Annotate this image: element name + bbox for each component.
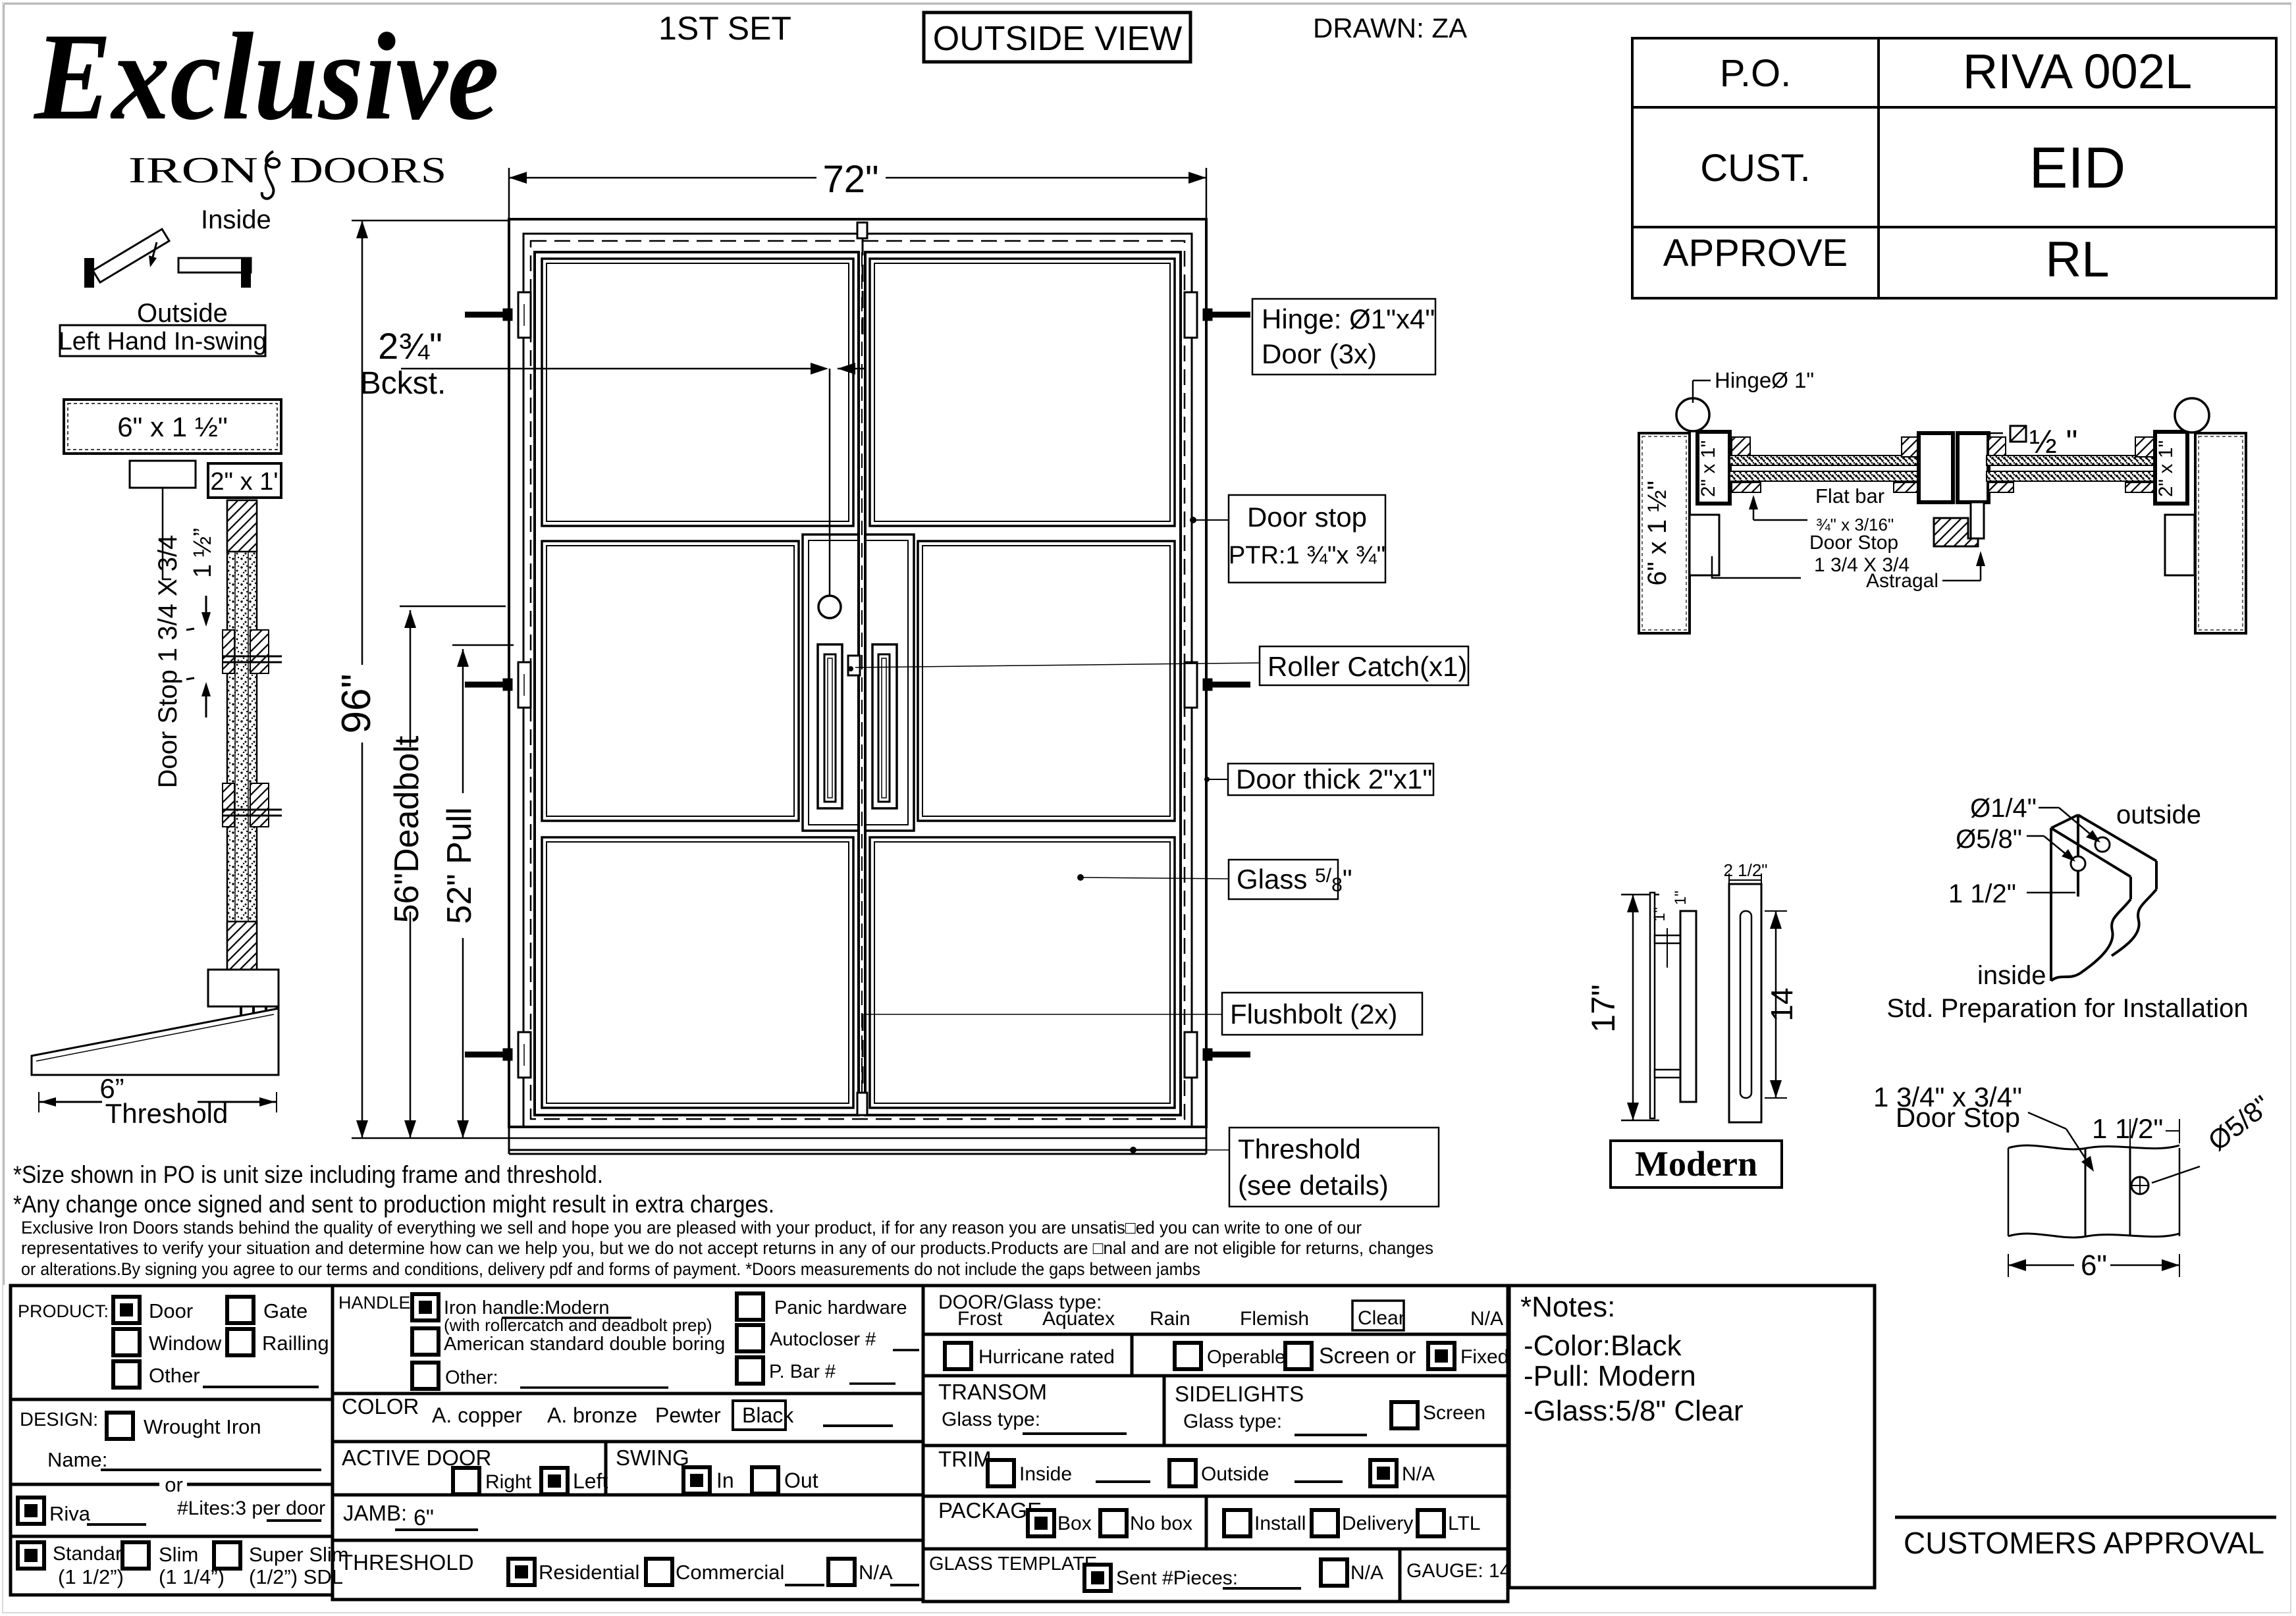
svg-text:Ø1/4": Ø1/4" [1970,794,2037,823]
svg-text:2¾": 2¾" [378,325,442,367]
svg-text:Super Slim: Super Slim [249,1543,349,1566]
svg-text:2" x 1': 2" x 1' [210,468,278,496]
svg-text:Glass type:: Glass type: [942,1409,1040,1430]
svg-text:Hurricane rated: Hurricane rated [978,1346,1115,1368]
svg-text:Gate: Gate [263,1299,307,1322]
svg-text:*Size shown in PO is unit size: *Size shown in PO is unit size including… [13,1161,603,1188]
svg-text:Commercial: Commercial [676,1561,784,1584]
svg-text:Door thick 2"x1": Door thick 2"x1" [1236,764,1432,795]
svg-text:Residential: Residential [539,1561,639,1584]
svg-text:Threshold: Threshold [105,1098,228,1129]
svg-text:GAUGE: 14: GAUGE: 14 [1406,1560,1510,1582]
svg-text:1 1/2": 1 1/2" [2092,1113,2163,1144]
svg-text:Std. Preparation for Installat: Std. Preparation for Installation [1886,994,2248,1023]
svg-text:or alterations.By signing you: or alterations.By signing you agree to o… [21,1259,1200,1279]
svg-text:DESIGN:: DESIGN: [20,1409,98,1430]
svg-text:Door: Door [149,1299,193,1322]
svg-text:A. copper: A. copper [432,1403,522,1427]
svg-text:No box: No box [1130,1513,1192,1534]
svg-text:Frost: Frost [957,1308,1003,1330]
svg-text:1 1/2": 1 1/2" [1948,879,2016,908]
svg-text:Aquatex: Aquatex [1042,1308,1115,1330]
svg-text:COLOR: COLOR [342,1394,419,1419]
svg-text:Pewter: Pewter [655,1403,721,1427]
svg-text:*Notes:: *Notes: [1520,1291,1615,1323]
svg-text:American standard double borin: American standard double boring [444,1334,725,1355]
svg-text:Flushbolt (2x): Flushbolt (2x) [1230,999,1397,1030]
svg-text:LTL: LTL [1448,1513,1480,1534]
svg-text:2 1/2": 2 1/2" [1723,860,1767,880]
svg-text:Wrought Iron: Wrought Iron [144,1415,261,1438]
svg-text:N/A: N/A [1402,1463,1435,1485]
svg-text:Window: Window [149,1332,222,1355]
svg-text:TRIM: TRIM [938,1447,992,1471]
svg-text:Riva: Riva [49,1502,91,1525]
svg-text:52" Pull: 52" Pull [441,807,479,924]
svg-text:PTR:1 ¾"x ¾": PTR:1 ¾"x ¾" [1229,542,1385,569]
svg-text:1 ½”: 1 ½” [189,528,217,578]
svg-text:(with rollercatch and deadbolt: (with rollercatch and deadbolt prep) [444,1315,712,1335]
svg-text:Glass type:: Glass type: [1183,1411,1282,1432]
svg-text:(1 1/2”): (1 1/2”) [58,1565,124,1588]
svg-text:THRESHOLD: THRESHOLD [340,1550,474,1575]
svg-text:Delivery: Delivery [1342,1513,1413,1534]
svg-text:72": 72" [822,158,878,201]
svg-text:14: 14 [1765,987,1799,1021]
svg-text:Left: Left [573,1469,608,1493]
svg-text:Screen: Screen [1423,1402,1485,1424]
svg-text:OUTSIDE VIEW: OUTSIDE VIEW [933,20,1182,58]
svg-text:APPROVE: APPROVE [1663,232,1848,274]
svg-text:or: or [165,1473,183,1496]
svg-text:6": 6" [414,1505,434,1530]
svg-text:56"Deadbolt: 56"Deadbolt [388,735,426,923]
svg-text:Autocloser #: Autocloser # [770,1329,876,1350]
svg-text:Outside: Outside [1201,1463,1269,1485]
svg-text:Modern: Modern [1635,1144,1757,1184]
svg-text:Outside: Outside [137,299,228,328]
svg-text:IRON: IRON [128,150,258,191]
svg-text:Box: Box [1057,1513,1092,1534]
svg-text:DRAWN: ZA: DRAWN: ZA [1313,13,1467,43]
svg-text:Left Hand In-swing: Left Hand In-swing [59,328,267,355]
svg-text:Exclusive Iron Doors stands be: Exclusive Iron Doors stands behind the q… [21,1218,1362,1238]
svg-text:Door Stop: Door Stop [1896,1102,2020,1133]
svg-text:Other: Other [149,1364,200,1387]
svg-text:1": 1" [1651,907,1669,922]
svg-text:2" x 1": 2" x 1" [2155,440,2177,497]
svg-text:Install: Install [1254,1513,1306,1534]
svg-text:A. bronze: A. bronze [547,1403,637,1427]
svg-text:TRANSOM: TRANSOM [938,1380,1047,1404]
svg-text:Black: Black [742,1403,794,1427]
svg-text:1ST SET: 1ST SET [658,10,791,47]
svg-text:Roller Catch(x1): Roller Catch(x1) [1268,651,1467,682]
svg-text:Hinge: Ø1"x4": Hinge: Ø1"x4" [1262,303,1435,334]
svg-text:Other:: Other: [445,1367,498,1388]
svg-text:96": 96" [334,674,379,734]
svg-text:*Any change once signed and se: *Any change once signed and sent to prod… [13,1191,774,1218]
svg-text:Ø5/8": Ø5/8" [1956,825,2022,854]
svg-text:-Pull: Modern: -Pull: Modern [1524,1360,1696,1392]
svg-text:In: In [716,1469,734,1492]
svg-text:1": 1" [1672,891,1690,905]
svg-text:Exclusive: Exclusive [33,8,499,146]
svg-text:HANDLE: HANDLE [338,1293,411,1313]
svg-text:RIVA 002L: RIVA 002L [1963,44,2192,99]
svg-text:SIDELIGHTS: SIDELIGHTS [1175,1382,1304,1406]
svg-text:Door Stop 1 3/4 X 3/4: Door Stop 1 3/4 X 3/4 [153,535,182,789]
svg-text:Operable: Operable [1207,1347,1285,1368]
svg-text:(see details): (see details) [1238,1170,1389,1201]
svg-text:Name:: Name: [47,1448,107,1471]
svg-text:HingeØ 1": HingeØ 1" [1715,368,1814,392]
svg-text:DOORS: DOORS [290,150,446,191]
svg-text:SWING: SWING [616,1446,689,1470]
svg-text:-Color:Black: -Color:Black [1524,1330,1682,1362]
svg-text:Fixed: Fixed [1460,1346,1508,1368]
svg-text:-Glass:5/8" Clear: -Glass:5/8" Clear [1524,1395,1744,1427]
svg-text:GLASS TEMPLATE: GLASS TEMPLATE [929,1553,1097,1575]
svg-text:Slim: Slim [159,1543,198,1566]
svg-text:Railling: Railling [262,1332,329,1355]
svg-text:P. Bar #: P. Bar # [769,1361,836,1382]
svg-text:6" x 1 ½": 6" x 1 ½" [117,411,228,442]
svg-text:6" x 1 ½": 6" x 1 ½" [1643,481,1672,586]
svg-text:17": 17" [1585,984,1622,1032]
svg-text:#Lites:3 per door: #Lites:3 per door [177,1498,325,1519]
svg-text:CUSTOMERS APPROVAL: CUSTOMERS APPROVAL [1904,1526,2264,1560]
svg-text:representatives to verify your: representatives to verify your situation… [21,1238,1433,1258]
svg-text:Inside: Inside [201,205,271,234]
svg-text:½ ": ½ " [2029,423,2077,460]
svg-text:P.O.: P.O. [1720,52,1792,95]
svg-text:Door (3x): Door (3x) [1262,338,1377,369]
svg-text:N/A: N/A [1350,1562,1383,1584]
svg-text:Rain: Rain [1150,1308,1190,1330]
svg-text:Right: Right [485,1471,532,1493]
svg-text:2" x 1": 2" x 1" [1697,440,1719,497]
svg-text:Inside: Inside [1019,1463,1072,1485]
svg-text:Threshold: Threshold [1238,1134,1361,1164]
svg-text:Out: Out [784,1469,818,1492]
svg-text:Bckst.: Bckst. [360,366,446,401]
svg-text:Flemish: Flemish [1240,1308,1309,1330]
svg-text:RL: RL [2045,232,2109,288]
svg-text:Screen or: Screen or [1319,1343,1416,1368]
svg-text:EID: EID [2029,135,2126,200]
svg-text:CUST.: CUST. [1700,147,1811,190]
svg-text:1 3/4 X 3/4: 1 3/4 X 3/4 [1814,554,1909,576]
svg-text:(1/2”) SDL: (1/2”) SDL [249,1565,343,1588]
svg-text:Door Stop: Door Stop [1809,532,1898,554]
svg-text:Panic hardware: Panic hardware [774,1297,907,1318]
svg-text:N/A: N/A [1470,1308,1503,1330]
svg-text:outside: outside [2116,800,2201,829]
svg-text:Flat bar: Flat bar [1815,484,1884,508]
svg-text:Door stop: Door stop [1247,502,1367,533]
svg-text:Clear: Clear [1358,1307,1405,1329]
svg-text:PRODUCT:: PRODUCT: [18,1301,109,1321]
svg-text:Sent #Pieces:: Sent #Pieces: [1116,1567,1238,1589]
svg-text:6": 6" [2081,1249,2107,1282]
svg-text:N/A: N/A [859,1561,893,1584]
svg-text:inside: inside [1977,961,2046,990]
svg-text:JAMB:: JAMB: [343,1501,407,1525]
